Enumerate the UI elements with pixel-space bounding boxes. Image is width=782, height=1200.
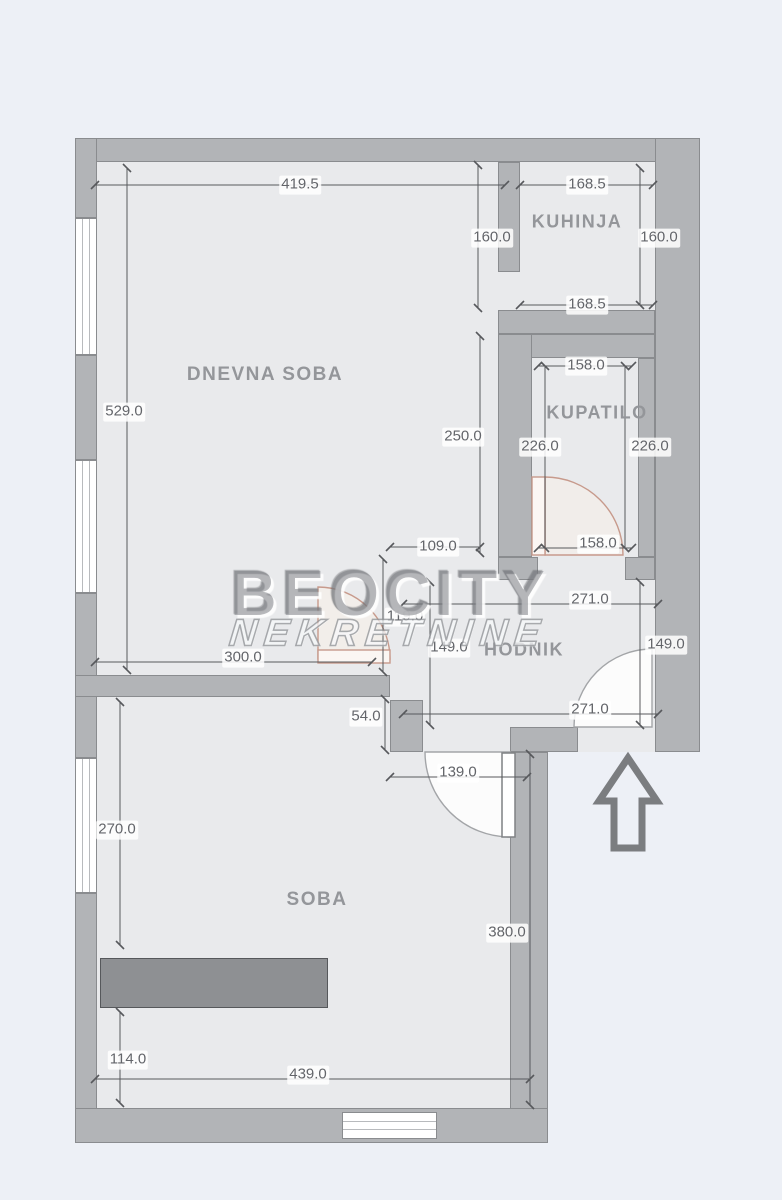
window [75, 758, 97, 893]
wall-segment [75, 675, 390, 697]
dimension-label: 139.0 [437, 764, 479, 783]
window [342, 1112, 437, 1139]
dimension-label: 160.0 [638, 229, 680, 248]
room-label: KUPATILO [546, 403, 647, 424]
floor-area [97, 162, 655, 752]
dimension-label: 226.0 [519, 438, 561, 457]
dimension-label: 54.0 [349, 708, 382, 727]
wall-segment [75, 1108, 548, 1143]
furniture-block [100, 958, 328, 1008]
room-label: DNEVNA SOBA [187, 364, 343, 386]
wall-segment [625, 557, 655, 580]
room-label: SOBA [287, 889, 348, 911]
wall-segment [510, 752, 548, 1143]
dimension-label: 270.0 [96, 821, 138, 840]
wall-segment [638, 358, 655, 557]
window [75, 218, 97, 355]
dimension-label: 109.0 [417, 538, 459, 557]
dimension-label: 226.0 [629, 438, 671, 457]
dimension-label: 529.0 [103, 403, 145, 422]
watermark-nekretnine: NEKRETNINE [227, 613, 549, 656]
dimension-label: 114.0 [108, 1051, 148, 1070]
wall-segment [390, 700, 423, 752]
entrance-arrow-icon [599, 758, 657, 848]
floor-plan: 419.5168.5160.0160.0168.5529.0158.0226.0… [0, 0, 782, 1200]
dimension-label: 250.0 [442, 428, 484, 447]
dimension-label: 271.0 [569, 701, 611, 720]
wall-segment [510, 727, 578, 752]
wall-segment [75, 355, 97, 460]
dimension-label: 158.0 [565, 357, 607, 376]
dimension-label: 160.0 [471, 229, 513, 248]
wall-segment [75, 893, 97, 1143]
window [75, 460, 97, 593]
wall-segment [75, 138, 97, 218]
dimension-label: 149.0 [645, 636, 687, 655]
dimension-label: 380.0 [486, 924, 528, 943]
wall-segment [75, 138, 700, 162]
dimension-label: 439.0 [287, 1066, 329, 1085]
dimension-label: 168.5 [566, 296, 608, 315]
dimension-label: 168.5 [566, 176, 608, 195]
room-label: KUHINJA [532, 212, 623, 233]
dimension-label: 271.0 [569, 591, 611, 610]
wall-segment [498, 162, 520, 272]
dimension-label: 419.5 [279, 176, 321, 195]
dimension-label: 158.0 [577, 535, 619, 554]
